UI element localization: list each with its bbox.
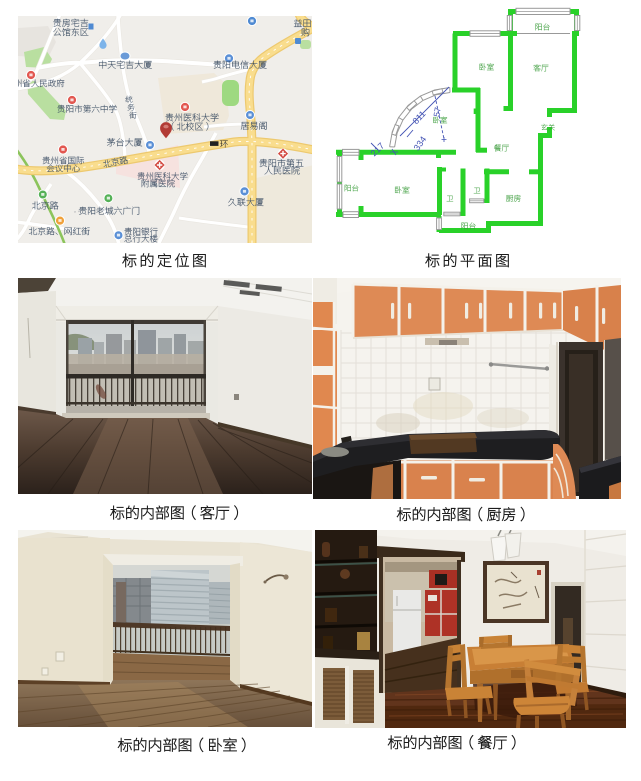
- svg-text:57: 57: [431, 106, 442, 117]
